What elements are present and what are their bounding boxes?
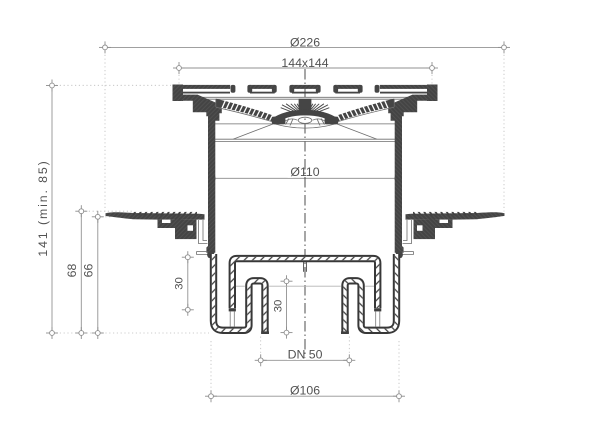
svg-text:30: 30: [273, 300, 285, 313]
svg-text:Ø226: Ø226: [290, 35, 320, 49]
svg-text:141 (min. 85): 141 (min. 85): [36, 159, 50, 256]
svg-text:144x144: 144x144: [281, 56, 328, 70]
svg-text:30: 30: [174, 277, 186, 290]
svg-text:Ø106: Ø106: [290, 384, 320, 398]
svg-text:DN 50: DN 50: [288, 348, 323, 362]
svg-text:68: 68: [65, 264, 79, 278]
svg-text:66: 66: [82, 264, 96, 278]
